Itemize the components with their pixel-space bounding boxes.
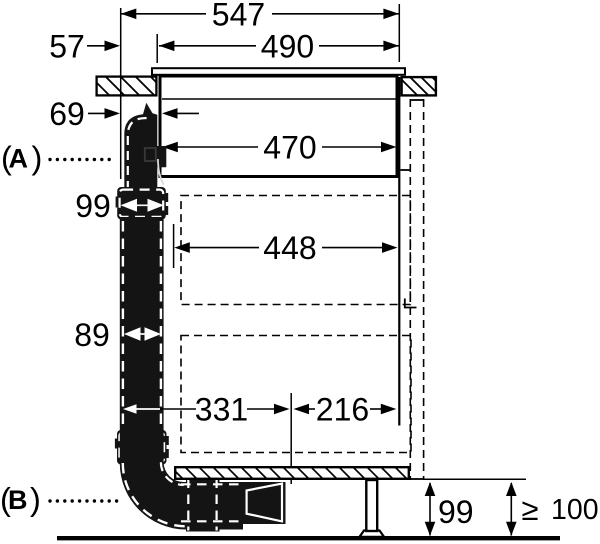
- svg-text:216: 216: [316, 392, 369, 428]
- svg-text:≥: ≥: [522, 492, 539, 527]
- svg-text:57: 57: [49, 29, 85, 65]
- svg-text:69: 69: [49, 96, 85, 132]
- svg-text:331: 331: [195, 392, 248, 428]
- svg-text:99: 99: [438, 494, 474, 530]
- svg-text:470: 470: [263, 130, 316, 166]
- svg-text:448: 448: [263, 230, 316, 266]
- svg-text:): ): [32, 140, 43, 176]
- svg-text:89: 89: [74, 317, 110, 353]
- svg-text:100: 100: [551, 494, 599, 526]
- svg-text:B: B: [8, 485, 28, 515]
- svg-text:490: 490: [261, 29, 314, 65]
- svg-text:547: 547: [212, 0, 265, 33]
- svg-text:A: A: [9, 144, 29, 174]
- svg-text:99: 99: [75, 188, 111, 224]
- svg-text:): ): [30, 482, 41, 518]
